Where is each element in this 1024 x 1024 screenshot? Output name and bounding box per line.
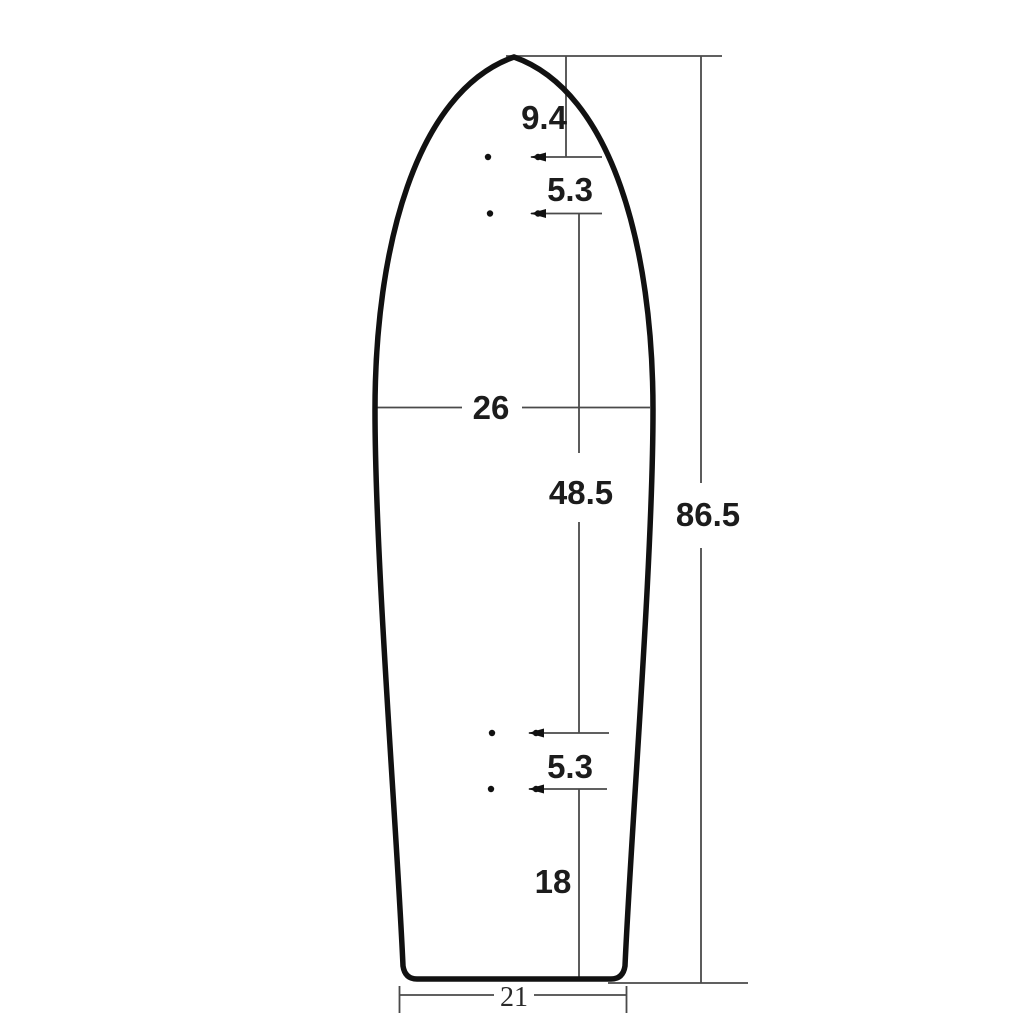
dim-label-rear-hole-spacing: 5.3 xyxy=(547,748,593,785)
mounting-hole xyxy=(535,210,541,216)
dim-label-front-hole-spacing: 5.3 xyxy=(547,171,593,208)
mounting-hole xyxy=(487,210,493,216)
diagram-canvas: 9.4 5.3 26 48.5 86.5 5.3 18 21 xyxy=(0,0,1024,1024)
mounting-hole xyxy=(485,154,491,160)
mounting-hole xyxy=(533,730,539,736)
dimension-drawing-svg: 9.4 5.3 26 48.5 86.5 5.3 18 21 xyxy=(0,0,1024,1024)
dim-label-overall-length: 86.5 xyxy=(676,496,740,533)
dim-label-tail-width: 21 xyxy=(500,982,528,1013)
deck-outline-fill xyxy=(375,57,653,979)
dim-label-hole-to-hole-length: 48.5 xyxy=(549,474,613,511)
mounting-hole xyxy=(535,154,541,160)
dim-label-tail-offset: 18 xyxy=(535,863,572,900)
mounting-hole xyxy=(489,730,495,736)
dim-label-nose-offset: 9.4 xyxy=(521,99,568,136)
dim-label-max-width: 26 xyxy=(473,389,510,426)
mounting-hole xyxy=(488,786,494,792)
mounting-hole xyxy=(533,786,539,792)
